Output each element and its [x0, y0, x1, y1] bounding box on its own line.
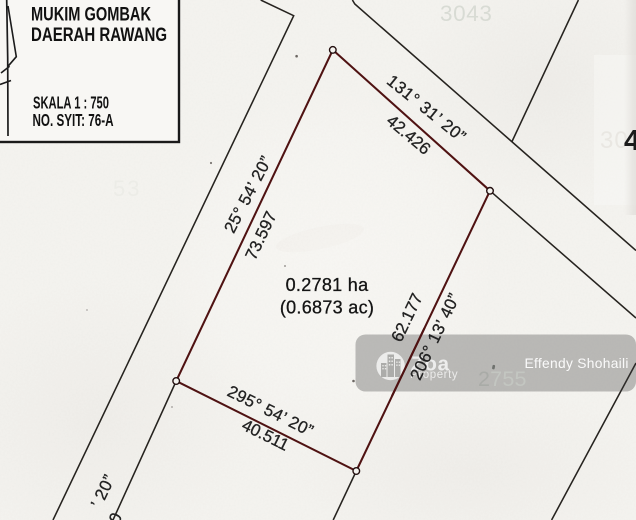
svg-text:3043: 3043: [440, 1, 492, 26]
svg-text:NO. SYIT: 76-A: NO. SYIT: 76-A: [33, 110, 114, 130]
svg-text:Effendy Shohaili: Effendy Shohaili: [525, 356, 629, 371]
svg-text:DAERAH RAWANG: DAERAH RAWANG: [31, 24, 167, 46]
svg-text:MUKIM GOMBAK: MUKIM GOMBAK: [31, 4, 151, 26]
svg-text:(0.6873 ac): (0.6873 ac): [280, 298, 374, 318]
svg-text:2755: 2755: [478, 367, 527, 391]
svg-text:53: 53: [113, 176, 141, 201]
svg-text:4: 4: [624, 125, 636, 157]
svg-text:0.2781 ha: 0.2781 ha: [286, 275, 369, 295]
